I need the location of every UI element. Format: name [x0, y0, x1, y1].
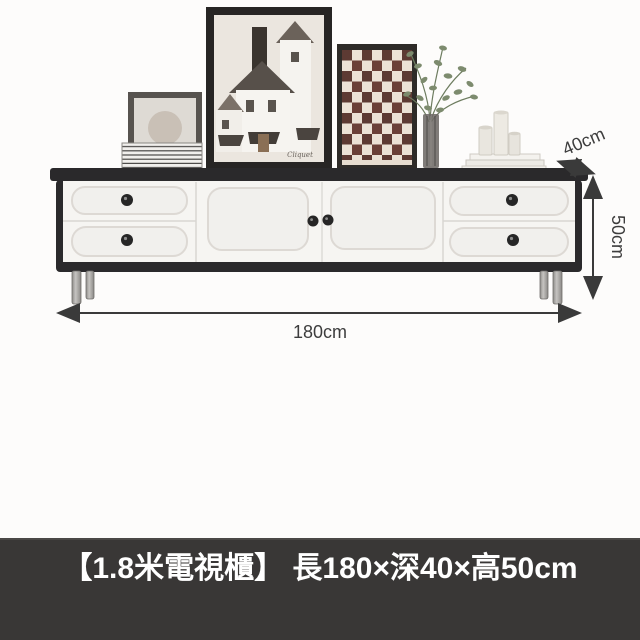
- product-caption: 【1.8米電視櫃】 長180×深40×高50cm: [62, 548, 577, 590]
- height-label: 50cm: [608, 215, 628, 259]
- door-panel: [331, 187, 435, 249]
- scene-svg: Cliquet: [0, 0, 640, 538]
- cabinet-top: [50, 168, 588, 181]
- cabinet-legs: [72, 271, 562, 304]
- framed-art: Cliquet: [206, 7, 332, 170]
- plant-vase: [423, 114, 439, 168]
- width-label: 180cm: [293, 322, 347, 342]
- art-signature: Cliquet: [287, 151, 313, 159]
- tv-cabinet: [50, 168, 588, 304]
- depth-label: 40cm: [559, 124, 607, 160]
- caption-bar: 【1.8米電視櫃】 長180×深40×高50cm: [0, 538, 640, 640]
- chessboard-coords: [342, 160, 412, 165]
- door-panel: [208, 188, 308, 250]
- product-photo: Cliquet: [0, 0, 640, 538]
- round-art-circle: [148, 111, 182, 145]
- chessboard: [337, 44, 417, 170]
- magazine-stack: [122, 143, 202, 171]
- chessboard-squares: [342, 50, 412, 160]
- candles: [479, 111, 520, 156]
